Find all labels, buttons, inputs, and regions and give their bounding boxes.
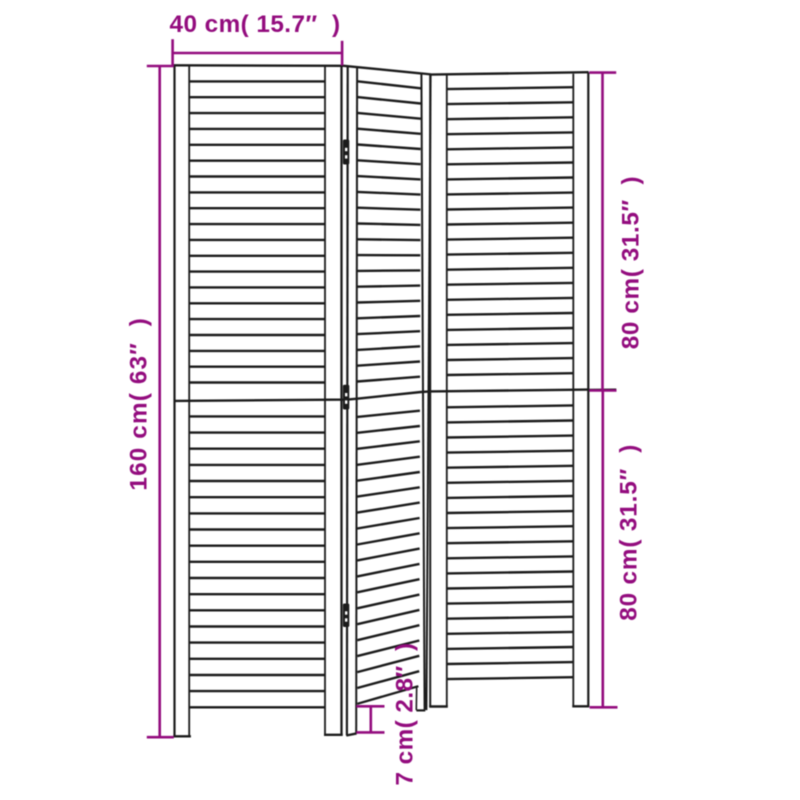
svg-text:80 cm( 31.5″ ): 80 cm( 31.5″ ) (617, 176, 644, 350)
svg-text:7 cm( 2.8″ ): 7 cm( 2.8″ ) (391, 642, 418, 785)
svg-text:80 cm( 31.5″ ): 80 cm( 31.5″ ) (616, 444, 643, 621)
svg-text:160 cm( 63″ ): 160 cm( 63″ ) (125, 317, 152, 491)
svg-text:40 cm( 15.7″ ): 40 cm( 15.7″ ) (169, 11, 340, 38)
